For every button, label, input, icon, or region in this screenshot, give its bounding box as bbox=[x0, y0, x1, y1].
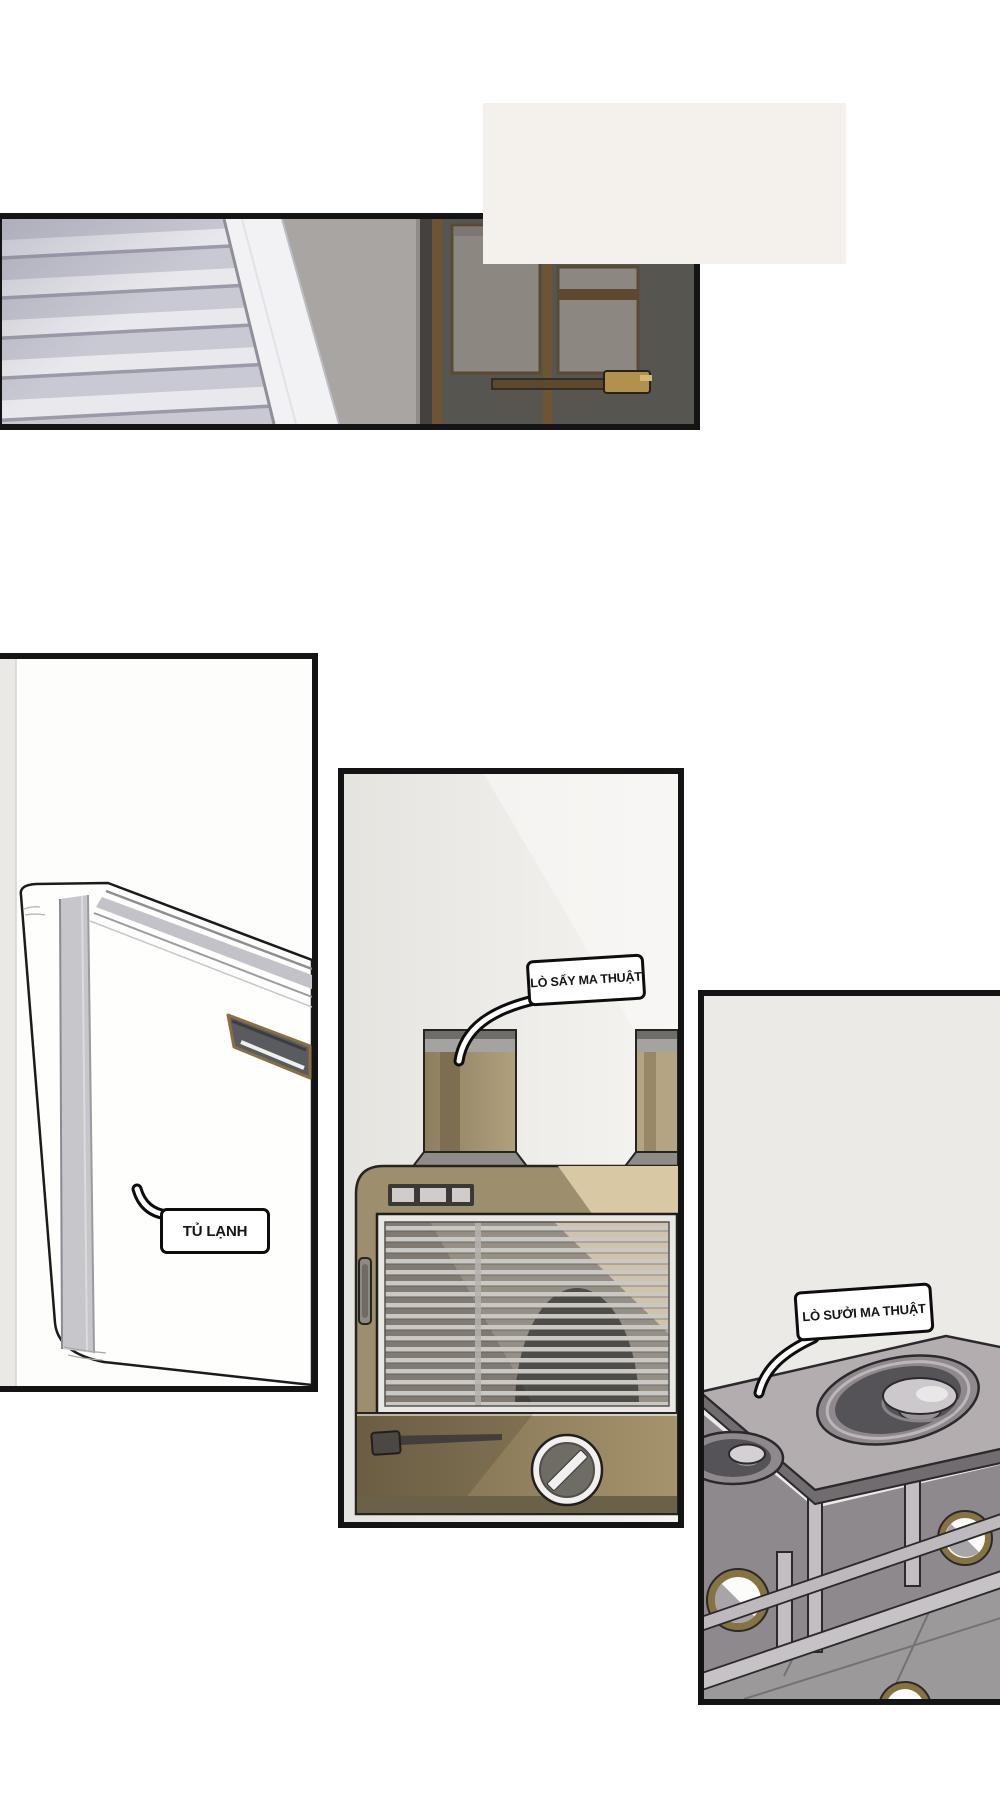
panel-dryer bbox=[338, 768, 684, 1528]
comic-page: TỦ LẠNH LÒ SẤY MA THUẬT LÒ SƯỞI MA THUẬT bbox=[0, 0, 1000, 1803]
speech-bubble-fridge: TỦ LẠNH bbox=[160, 1208, 270, 1254]
dryer-grille bbox=[377, 1214, 677, 1414]
speech-bubble-heater: LÒ SƯỞI MA THUẬT bbox=[793, 1282, 934, 1342]
heater-illustration bbox=[704, 996, 1000, 1699]
blank-caption-box bbox=[483, 103, 846, 264]
refrigerator-illustration bbox=[0, 659, 312, 1386]
dryer-base bbox=[356, 1413, 678, 1514]
dryer-controls bbox=[388, 1184, 474, 1206]
dryer-illustration bbox=[344, 774, 678, 1522]
fridge-label: TỦ LẠNH bbox=[183, 1223, 247, 1240]
wall-strip bbox=[0, 659, 16, 1386]
panel-heater bbox=[698, 990, 1000, 1705]
stove-burner-left bbox=[704, 1432, 783, 1484]
dryer-label: LÒ SẤY MA THUẬT bbox=[530, 970, 642, 991]
speech-bubble-dryer: LÒ SẤY MA THUẬT bbox=[526, 953, 647, 1006]
dryer-chimney-left bbox=[404, 1030, 536, 1178]
dryer-dial bbox=[532, 1435, 602, 1505]
heater-label: LÒ SƯỞI MA THUẬT bbox=[802, 1300, 926, 1324]
panel-fridge bbox=[0, 653, 318, 1392]
door-handle-brass bbox=[604, 371, 650, 393]
